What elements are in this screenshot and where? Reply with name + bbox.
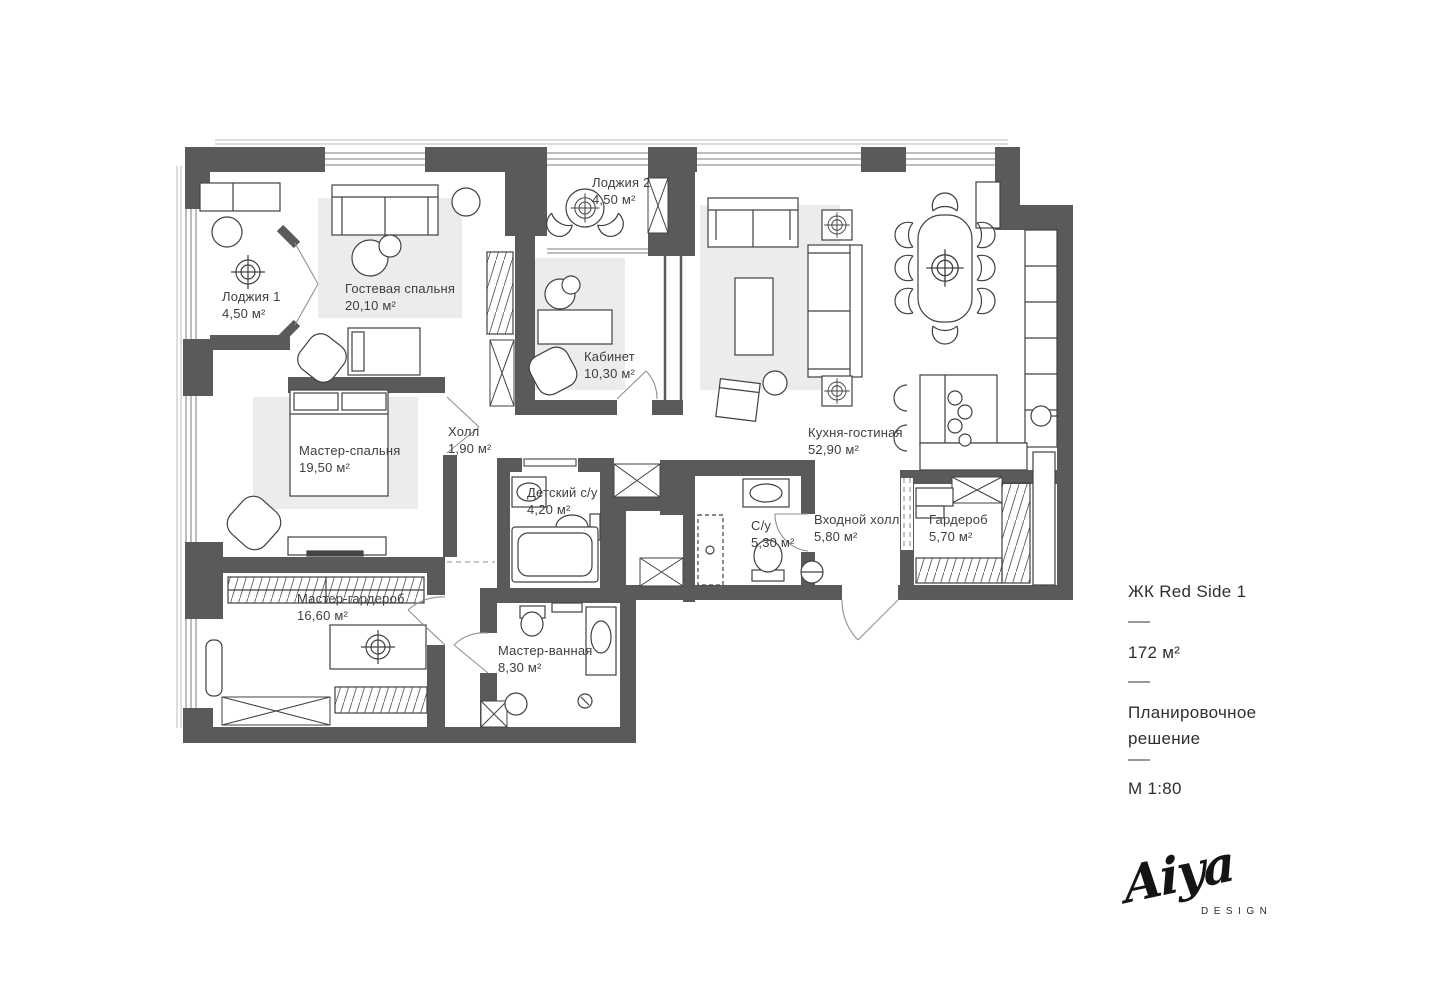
total-area: 172 м² — [1128, 643, 1180, 663]
room-name: Кабинет — [584, 348, 635, 365]
room-name: Гардероб — [929, 511, 988, 528]
room-name: Холл — [448, 423, 492, 440]
room-area: 19,50 м² — [299, 459, 400, 476]
room-area: 4,50 м² — [592, 191, 651, 208]
room-label-kitchen-living: Кухня-гостиная 52,90 м² — [808, 424, 903, 458]
room-label-loggia1: Лоджия 1 4,50 м² — [222, 288, 281, 322]
room-label-master-bedroom: Мастер-спальня 19,50 м² — [299, 442, 400, 476]
room-label-wardrobe: Гардероб 5,70 м² — [929, 511, 988, 545]
room-label-hall: Холл 1,90 м² — [448, 423, 492, 457]
room-area: 4,20 м² — [527, 501, 598, 518]
room-name: Мастер-спальня — [299, 442, 400, 459]
chamfer-walls — [280, 228, 297, 340]
document-type: Планировочное решение — [1128, 700, 1278, 752]
loggia1-furniture — [200, 183, 280, 247]
room-area: 16,60 м² — [297, 607, 405, 624]
room-area: 1,90 м² — [448, 440, 492, 457]
room-area: 8,30 м² — [498, 659, 593, 676]
room-area: 20,10 м² — [345, 297, 455, 314]
room-area: 10,30 м² — [584, 365, 635, 382]
room-name: Лоджия 2 — [592, 174, 651, 191]
room-name: Мастер-гардероб — [297, 590, 405, 607]
room-name: С/у — [751, 517, 795, 534]
floor-plan-page: Лоджия 1 4,50 м² Гостевая спальня 20,10 … — [0, 0, 1451, 1000]
brand-logo-caption: DESIGN — [1201, 906, 1272, 917]
room-area: 5,70 м² — [929, 528, 988, 545]
room-name: Лоджия 1 — [222, 288, 281, 305]
room-area: 5,80 м² — [814, 528, 900, 545]
room-area: 4,50 м² — [222, 305, 281, 322]
room-name: Мастер-ванная — [498, 642, 593, 659]
room-label-guest-bedroom: Гостевая спальня 20,10 м² — [345, 280, 455, 314]
room-label-bathroom: С/у 5,30 м² — [751, 517, 795, 551]
room-label-master-bathroom: Мастер-ванная 8,30 м² — [498, 642, 593, 676]
divider — [1128, 759, 1150, 761]
room-label-master-wardrobe: Мастер-гардероб 16,60 м² — [297, 590, 405, 624]
divider — [1128, 621, 1150, 623]
room-name: Детский с/у — [527, 484, 598, 501]
plan-scale: М 1:80 — [1128, 779, 1182, 799]
thin-partition — [665, 256, 681, 400]
room-name: Входной холл — [814, 511, 900, 528]
floor-plan-drawing — [0, 0, 1451, 1000]
room-label-entry-hall: Входной холл 5,80 м² — [814, 511, 900, 545]
room-label-kids-bathroom: Детский с/у 4,20 м² — [527, 484, 598, 518]
entry-hall-furniture — [801, 561, 823, 583]
room-label-office: Кабинет 10,30 м² — [584, 348, 635, 382]
room-name: Гостевая спальня — [345, 280, 455, 297]
ceiling-symbols — [231, 255, 265, 289]
divider — [1128, 681, 1150, 683]
project-name: ЖК Red Side 1 — [1128, 582, 1246, 602]
room-name: Кухня-гостиная — [808, 424, 903, 441]
room-area: 5,30 м² — [751, 534, 795, 551]
room-area: 52,90 м² — [808, 441, 903, 458]
room-label-loggia2: Лоджия 2 4,50 м² — [592, 174, 651, 208]
